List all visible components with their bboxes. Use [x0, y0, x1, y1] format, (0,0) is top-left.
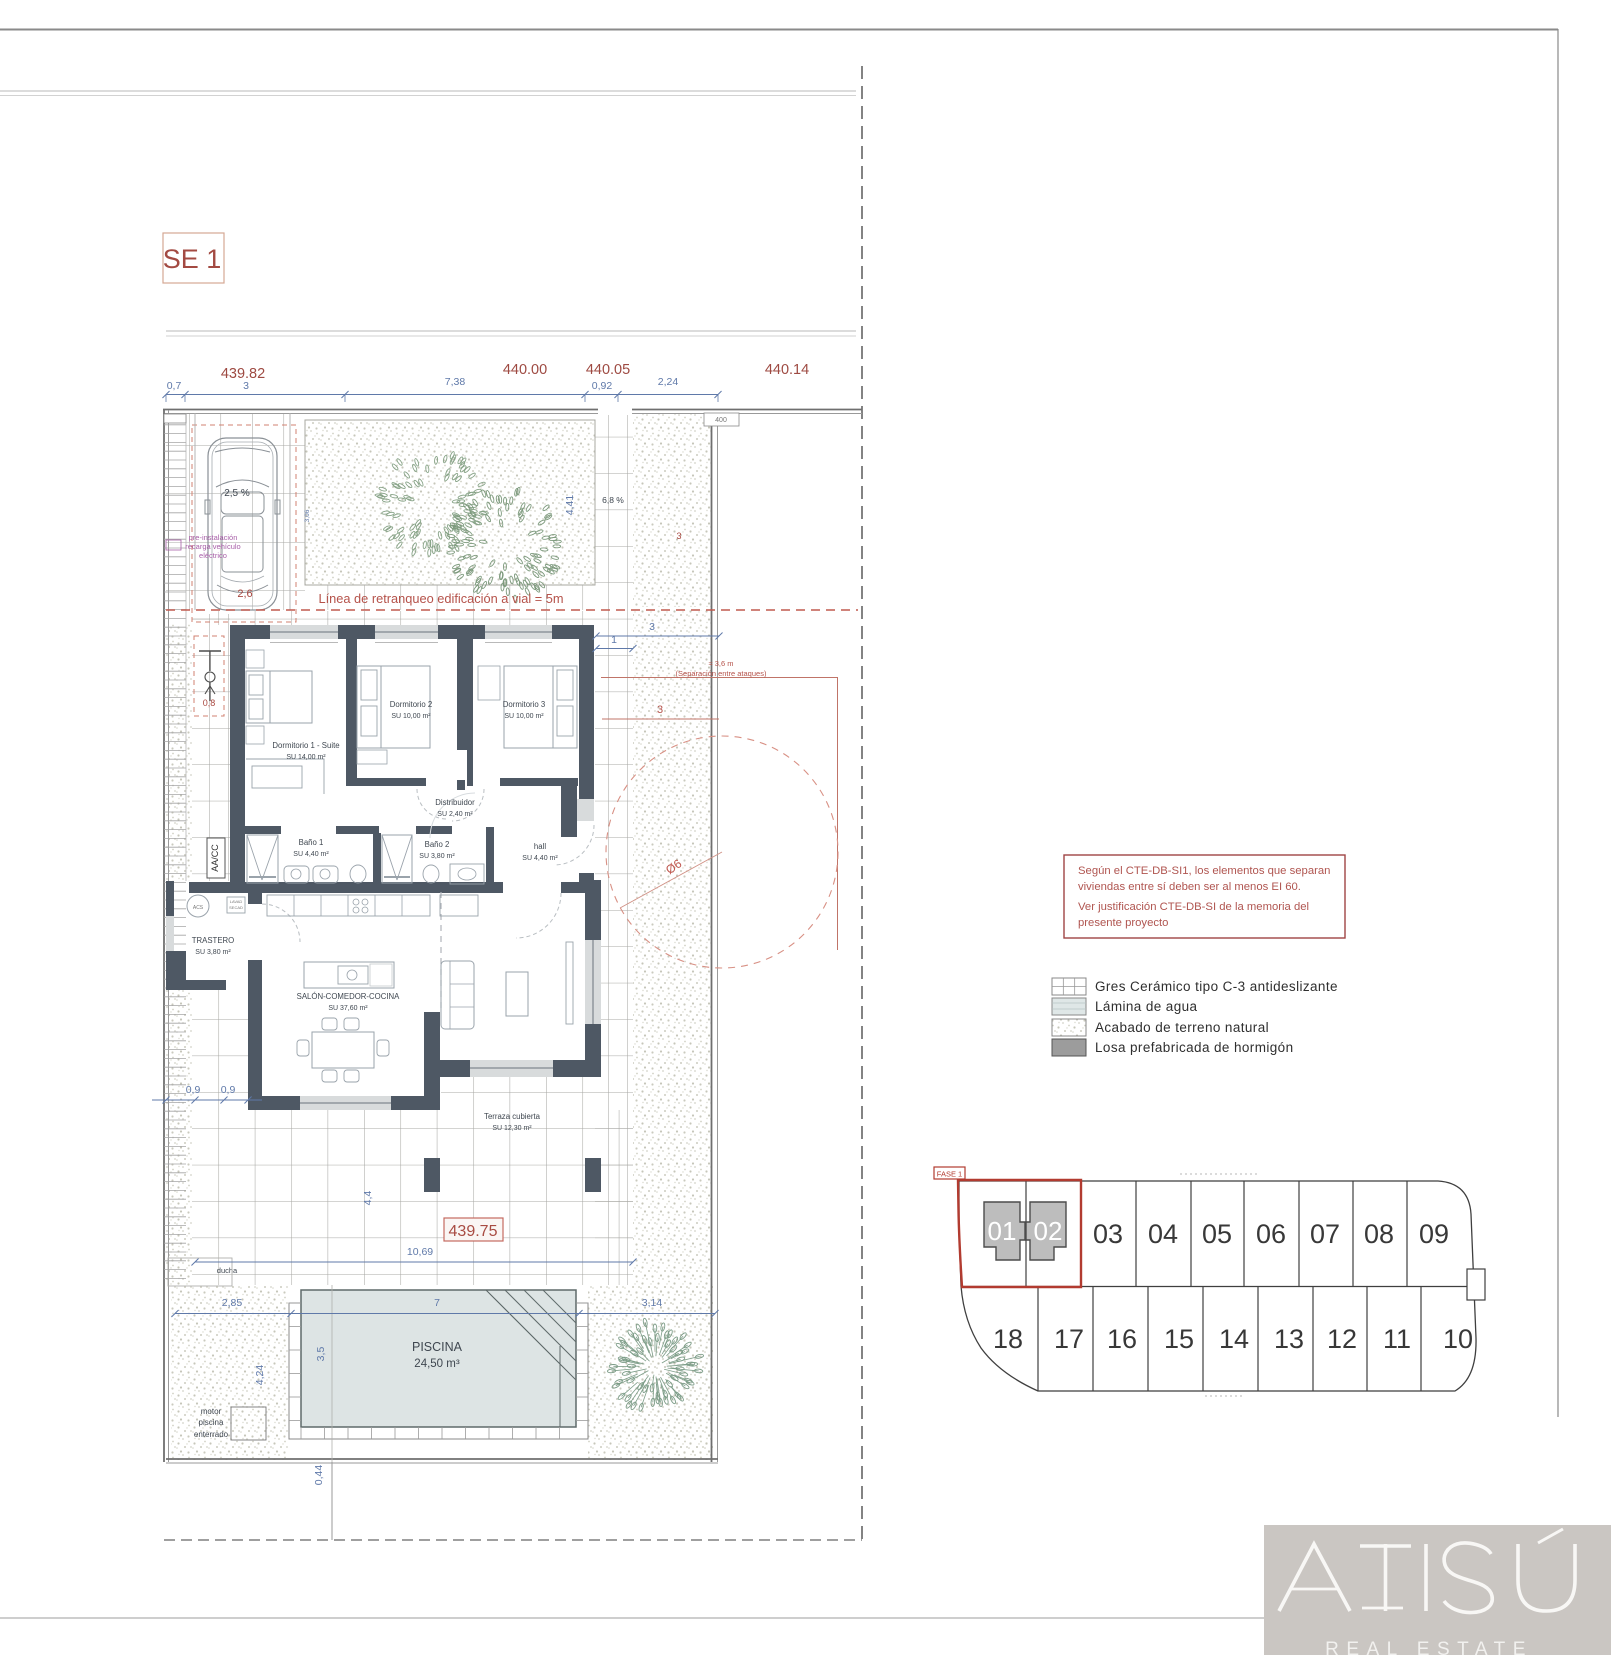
svg-text:04: 04 [1148, 1219, 1178, 1249]
svg-text:viviendas entre sí deben ser a: viviendas entre sí deben ser al menos EI… [1078, 881, 1301, 893]
svg-text:15: 15 [1164, 1324, 1194, 1354]
svg-text:REAL ESTATE: REAL ESTATE [1325, 1639, 1533, 1655]
svg-text:0,9: 0,9 [221, 1084, 236, 1096]
svg-text:Según el CTE-DB-SI1, los eleme: Según el CTE-DB-SI1, los elementos que s… [1078, 865, 1330, 877]
svg-text:10: 10 [1443, 1324, 1473, 1354]
svg-text:3: 3 [657, 704, 663, 716]
svg-text:0,9: 0,9 [186, 1084, 201, 1096]
svg-text:piscina: piscina [199, 1418, 224, 1427]
svg-text:hall: hall [534, 842, 546, 851]
svg-text:Línea de retranqueo edificació: Línea de retranqueo edificación a vial =… [318, 591, 563, 606]
svg-text:PISCINA: PISCINA [412, 1340, 463, 1354]
svg-text:recarga vehículo: recarga vehículo [185, 542, 240, 551]
svg-text:14: 14 [1219, 1324, 1249, 1354]
svg-text:3,14: 3,14 [642, 1297, 663, 1309]
svg-text:Dormitorio 2: Dormitorio 2 [390, 700, 432, 709]
svg-text:3: 3 [649, 621, 655, 633]
svg-text:SU 4,40 m²: SU 4,40 m² [522, 855, 558, 862]
svg-text:FASE 1: FASE 1 [937, 1170, 962, 1179]
svg-text:3,06: 3,06 [304, 509, 311, 522]
svg-text:SU 10,00 m²: SU 10,00 m² [504, 713, 544, 720]
svg-text:0,92: 0,92 [592, 380, 613, 392]
svg-text:eléctrico: eléctrico [199, 551, 227, 560]
svg-text:AA/CC: AA/CC [210, 844, 220, 872]
svg-text:09: 09 [1419, 1219, 1449, 1249]
svg-text:11: 11 [1383, 1324, 1411, 1354]
svg-text:(Separación entre ataques): (Separación entre ataques) [676, 669, 767, 678]
svg-text:Baño 2: Baño 2 [425, 840, 450, 849]
svg-text:7,38: 7,38 [445, 376, 466, 388]
svg-text:07: 07 [1310, 1219, 1340, 1249]
svg-text:2,5 %: 2,5 % [224, 488, 250, 499]
svg-text:03: 03 [1093, 1219, 1123, 1249]
svg-text:SU 14,00 m²: SU 14,00 m² [286, 754, 326, 761]
svg-text:Lámina de agua: Lámina de agua [1095, 999, 1198, 1014]
svg-text:presente proyecto: presente proyecto [1078, 917, 1168, 929]
svg-text:motor: motor [201, 1407, 222, 1416]
svg-text:10,69: 10,69 [407, 1246, 433, 1258]
svg-text:≈ 3,6 m: ≈ 3,6 m [709, 659, 734, 668]
svg-text:02: 02 [1034, 1216, 1063, 1246]
svg-text:440.05: 440.05 [586, 362, 630, 378]
svg-text:17: 17 [1054, 1324, 1084, 1354]
svg-text:Acabado de terreno natural: Acabado de terreno natural [1095, 1020, 1269, 1035]
svg-text:SU 12,30 m²: SU 12,30 m² [492, 1125, 532, 1132]
svg-text:06: 06 [1256, 1219, 1286, 1249]
svg-text:ACS: ACS [193, 905, 204, 911]
svg-text:12: 12 [1327, 1324, 1357, 1354]
svg-text:13: 13 [1274, 1324, 1304, 1354]
svg-text:24,50 m³: 24,50 m³ [414, 1358, 460, 1370]
svg-text:3: 3 [676, 531, 681, 541]
svg-text:1: 1 [611, 634, 617, 646]
svg-text:2,6: 2,6 [237, 588, 252, 600]
svg-text:SU 37,60 m²: SU 37,60 m² [328, 1005, 368, 1012]
svg-text:SE 1: SE 1 [163, 244, 222, 274]
svg-text:05: 05 [1202, 1219, 1232, 1249]
svg-text:440.00: 440.00 [503, 362, 547, 378]
svg-text:Terraza cubierta: Terraza cubierta [484, 1112, 541, 1121]
svg-text:pre-instalación: pre-instalación [189, 533, 238, 542]
svg-text:3,5: 3,5 [315, 1347, 327, 1362]
svg-text:SU 3,80 m²: SU 3,80 m² [195, 949, 231, 956]
svg-text:0,8: 0,8 [203, 698, 216, 708]
svg-text:4,41: 4,41 [564, 495, 576, 516]
svg-text:ducha: ducha [217, 1266, 238, 1275]
svg-text:439.75: 439.75 [449, 1223, 498, 1240]
svg-text:SU 10,00 m²: SU 10,00 m² [391, 713, 431, 720]
svg-text:TRASTERO: TRASTERO [192, 936, 234, 945]
svg-text:18: 18 [993, 1324, 1023, 1354]
svg-text:Gres Cerámico tipo C-3 antides: Gres Cerámico tipo C-3 antideslizante [1095, 979, 1338, 994]
svg-text:16: 16 [1107, 1324, 1137, 1354]
svg-text:439.82: 439.82 [221, 366, 265, 382]
svg-text:SALÓN-COMEDOR-COCINA: SALÓN-COMEDOR-COCINA [297, 992, 400, 1001]
svg-text:Distribuidor: Distribuidor [435, 798, 475, 807]
svg-text:SU 3,80 m²: SU 3,80 m² [419, 853, 455, 860]
svg-text:Losa prefabricada de hormigón: Losa prefabricada de hormigón [1095, 1040, 1293, 1055]
svg-text:Dormitorio 3: Dormitorio 3 [503, 700, 545, 709]
svg-text:01: 01 [988, 1216, 1017, 1246]
svg-text:2,85: 2,85 [222, 1297, 243, 1309]
svg-text:Baño 1: Baño 1 [299, 838, 324, 847]
svg-text:LAVAD: LAVAD [230, 899, 243, 904]
svg-text:4,4: 4,4 [362, 1191, 374, 1206]
svg-text:SU 2,40 m²: SU 2,40 m² [437, 811, 473, 818]
svg-text:440.14: 440.14 [765, 362, 809, 378]
svg-text:Ver justificación CTE-DB-SI de: Ver justificación CTE-DB-SI de la memori… [1078, 901, 1309, 913]
svg-text:0,7: 0,7 [167, 380, 182, 392]
svg-text:enterrado: enterrado [194, 1430, 229, 1439]
svg-text:400: 400 [715, 417, 727, 424]
svg-text:Dormitorio 1 - Suite: Dormitorio 1 - Suite [272, 741, 339, 750]
svg-text:7: 7 [434, 1297, 440, 1309]
svg-text:4,24: 4,24 [254, 1365, 266, 1386]
svg-text:2,24: 2,24 [658, 376, 679, 388]
svg-text:SECAD: SECAD [229, 905, 243, 910]
svg-text:SU 4,40 m²: SU 4,40 m² [293, 851, 329, 858]
svg-text:0,44: 0,44 [313, 1465, 325, 1486]
svg-text:08: 08 [1364, 1219, 1394, 1249]
svg-text:6,8 %: 6,8 % [602, 495, 624, 505]
